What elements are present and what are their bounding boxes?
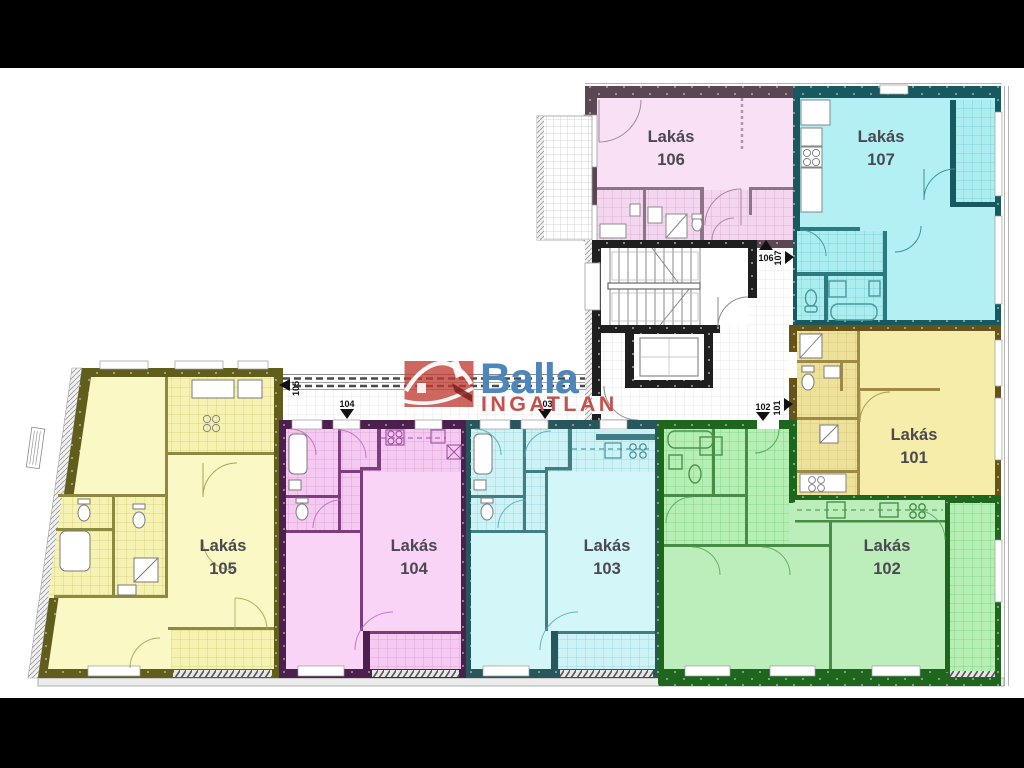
svg-text:101: 101 <box>772 400 782 415</box>
svg-text:Lakás: Lakás <box>864 537 911 555</box>
svg-text:101: 101 <box>900 449 928 467</box>
svg-text:105: 105 <box>209 560 237 578</box>
svg-text:104: 104 <box>339 399 354 409</box>
svg-text:102: 102 <box>755 402 770 412</box>
svg-text:INGATLAN: INGATLAN <box>481 392 618 416</box>
svg-text:Lakás: Lakás <box>200 537 247 555</box>
svg-text:106: 106 <box>657 151 685 169</box>
svg-text:106: 106 <box>758 253 773 263</box>
svg-text:103: 103 <box>593 560 621 578</box>
svg-text:Lakás: Lakás <box>891 426 938 444</box>
svg-text:Lakás: Lakás <box>584 537 631 555</box>
svg-text:107: 107 <box>773 250 783 265</box>
svg-text:104: 104 <box>400 560 428 578</box>
svg-text:Lakás: Lakás <box>648 128 695 146</box>
svg-text:107: 107 <box>867 151 895 169</box>
svg-text:Lakás: Lakás <box>858 128 905 146</box>
svg-text:102: 102 <box>873 560 901 578</box>
svg-text:105: 105 <box>291 381 301 396</box>
svg-text:Lakás: Lakás <box>391 537 438 555</box>
